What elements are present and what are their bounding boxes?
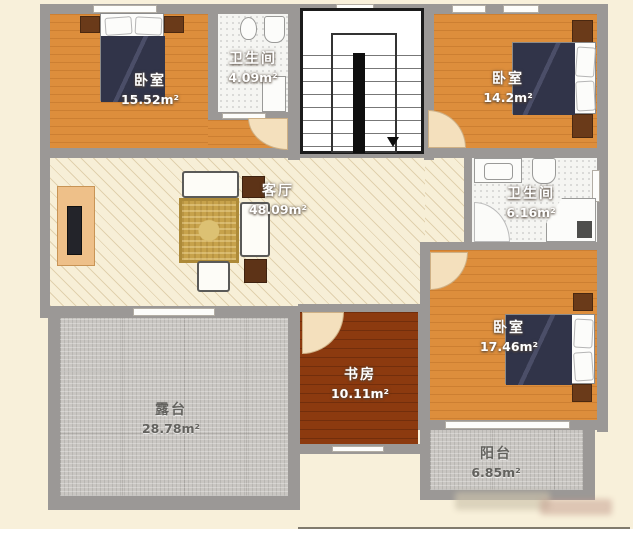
window-bedroom-tr-top-2 [503, 5, 539, 13]
pillow [573, 351, 594, 381]
room-name: 卧室 [121, 71, 179, 91]
room-name: 卧室 [480, 318, 538, 338]
wall-balcony-right [583, 428, 595, 500]
nightstand [164, 16, 184, 33]
label-bathroom-top: 卫生间 4.09m² [228, 49, 277, 87]
tv-icon [67, 206, 82, 255]
room-area: 6.16m² [506, 204, 555, 222]
room-name: 卫生间 [506, 184, 555, 204]
armchair [197, 261, 230, 292]
room-area: 28.78m² [142, 420, 200, 438]
blurred-watermark [540, 499, 612, 515]
room-name: 卧室 [483, 69, 532, 89]
nightstand [572, 20, 593, 44]
blurred-watermark [455, 492, 550, 510]
label-study: 书房 10.11m² [331, 365, 389, 403]
wall-bathroom-right-bottom [424, 242, 608, 250]
label-bathroom-right: 卫生间 6.16m² [506, 184, 555, 222]
room-area: 15.52m² [121, 91, 179, 109]
wall-study-top [298, 304, 428, 312]
wall-hall-bath-divider [464, 158, 472, 244]
area-rug [179, 198, 239, 263]
window-living-terrace [133, 308, 215, 316]
vanity-sink [474, 158, 522, 183]
sofa-three-seat [182, 171, 239, 198]
label-balcony: 阳台 6.85m² [471, 444, 520, 482]
room-area: 48.09m² [249, 201, 307, 219]
tv-cabinet [57, 186, 95, 266]
nightstand [80, 16, 100, 33]
wall-terrace-bottom [48, 496, 300, 510]
window-bedroom-tr-top-1 [452, 5, 486, 13]
pillow [575, 46, 596, 77]
side-table [244, 259, 267, 283]
label-bedroom-bottom-right: 卧室 17.46m² [480, 318, 538, 356]
room-name: 阳台 [471, 444, 520, 464]
room-name: 客厅 [249, 181, 307, 201]
room-name: 露台 [142, 400, 200, 420]
label-bedroom-top-right: 卧室 14.2m² [483, 69, 532, 107]
room-area: 17.46m² [480, 338, 538, 356]
toilet [264, 16, 285, 43]
wall-study-right [418, 304, 428, 430]
pillow [104, 16, 132, 36]
wall-terrace-left [48, 310, 60, 510]
paper-edge-line [298, 527, 630, 529]
nightstand [572, 384, 592, 402]
label-living-room: 客厅 48.09m² [249, 181, 307, 219]
pillow [575, 81, 596, 112]
wall-left [40, 4, 50, 318]
window-study-bottom [332, 446, 384, 452]
room-area: 6.85m² [471, 464, 520, 482]
toilet [532, 158, 556, 184]
label-bedroom-top-left: 卧室 15.52m² [121, 71, 179, 109]
wall-stair-left [288, 4, 300, 160]
staircase [300, 8, 424, 154]
room-name: 书房 [331, 365, 389, 385]
window-bedroom-tl-top [93, 5, 157, 13]
window-bedroom-br-balcony [445, 421, 570, 429]
pillow [573, 319, 593, 349]
label-terrace: 露台 28.78m² [142, 400, 200, 438]
sink-basin [484, 163, 513, 180]
window-bathroom-right [592, 170, 600, 202]
room-area: 10.11m² [331, 385, 389, 403]
room-name: 卫生间 [228, 49, 277, 69]
pillow [135, 16, 163, 35]
nightstand [573, 293, 593, 311]
room-area: 14.2m² [483, 89, 532, 107]
pedestal-sink [240, 17, 257, 40]
wall-right [597, 4, 608, 432]
stair-down-arrow-icon [387, 137, 399, 147]
floor-plan: 卧室 15.52m² 卫生间 4.09m² 卧室 14.2m² 客厅 48.09… [0, 0, 640, 537]
room-area: 4.09m² [228, 69, 277, 87]
wall-bedroom-bath-divider [208, 4, 218, 120]
hallway-floor [425, 158, 464, 244]
nightstand [572, 114, 593, 138]
shower-head-icon [577, 221, 592, 238]
wall-terrace-right [288, 306, 300, 504]
stair-center-stringer [353, 53, 365, 153]
